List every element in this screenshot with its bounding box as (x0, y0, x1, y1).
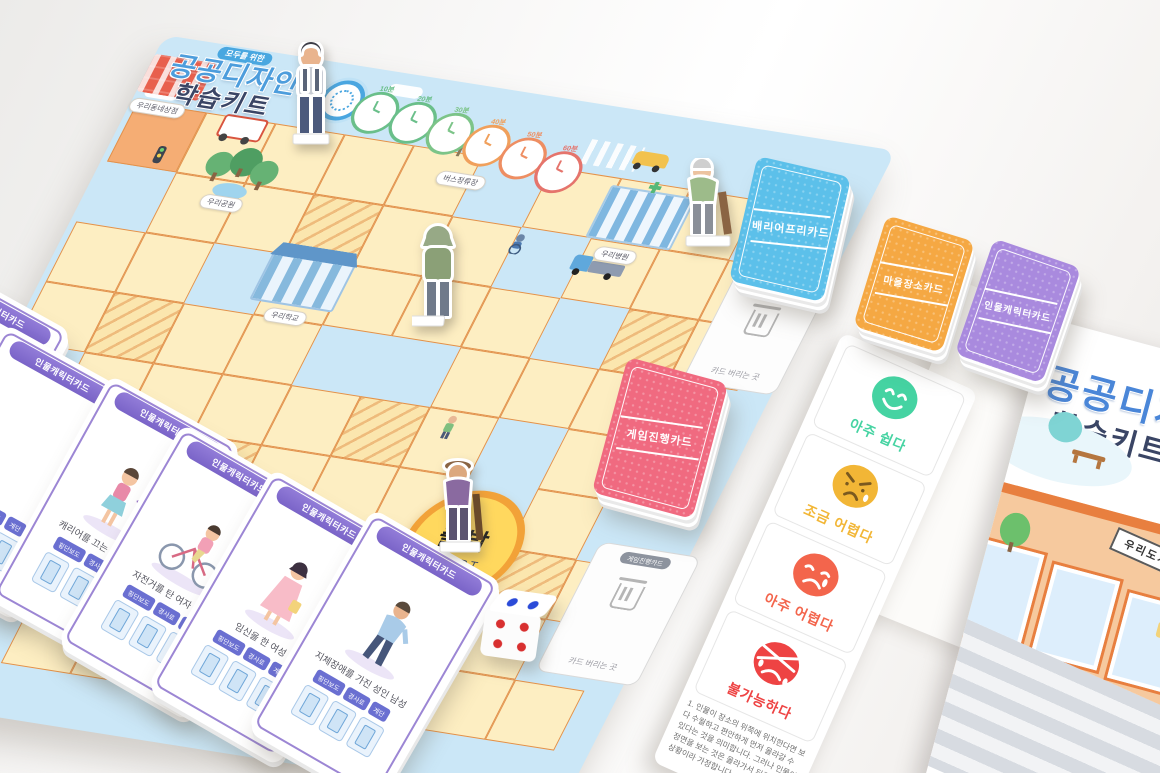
trash-icon (742, 310, 780, 338)
dice-pip (492, 638, 502, 648)
boy-standee (285, 42, 337, 155)
dice-pip (516, 641, 526, 651)
dice-pip (495, 618, 505, 628)
discard-zone-banner: 게임진행카드 (618, 551, 673, 570)
clock-minute-label: 60분 (561, 143, 580, 154)
cane-man-standee (430, 458, 488, 563)
trash-icon (608, 583, 646, 611)
hooded-person-standee (412, 222, 464, 337)
dice (479, 586, 544, 662)
dice-pip (526, 600, 541, 609)
clock-minute-label: 30분 (452, 105, 471, 116)
clock-minute-label: 50분 (525, 130, 544, 141)
elderly-couple-standee (678, 158, 742, 259)
dice-pip (519, 622, 529, 632)
clock-minute-label: 40분 (489, 117, 508, 128)
photo-stage: 모두를 위한 공공디자인 학습키트 10분20분30분40분50분60분 우리동… (0, 0, 1160, 773)
clock-minute-label: 20분 (415, 94, 434, 105)
discard-zone-note: 카드 버리는 곳 (566, 655, 619, 673)
dice-pip (505, 597, 520, 606)
car-illustration (631, 150, 671, 168)
